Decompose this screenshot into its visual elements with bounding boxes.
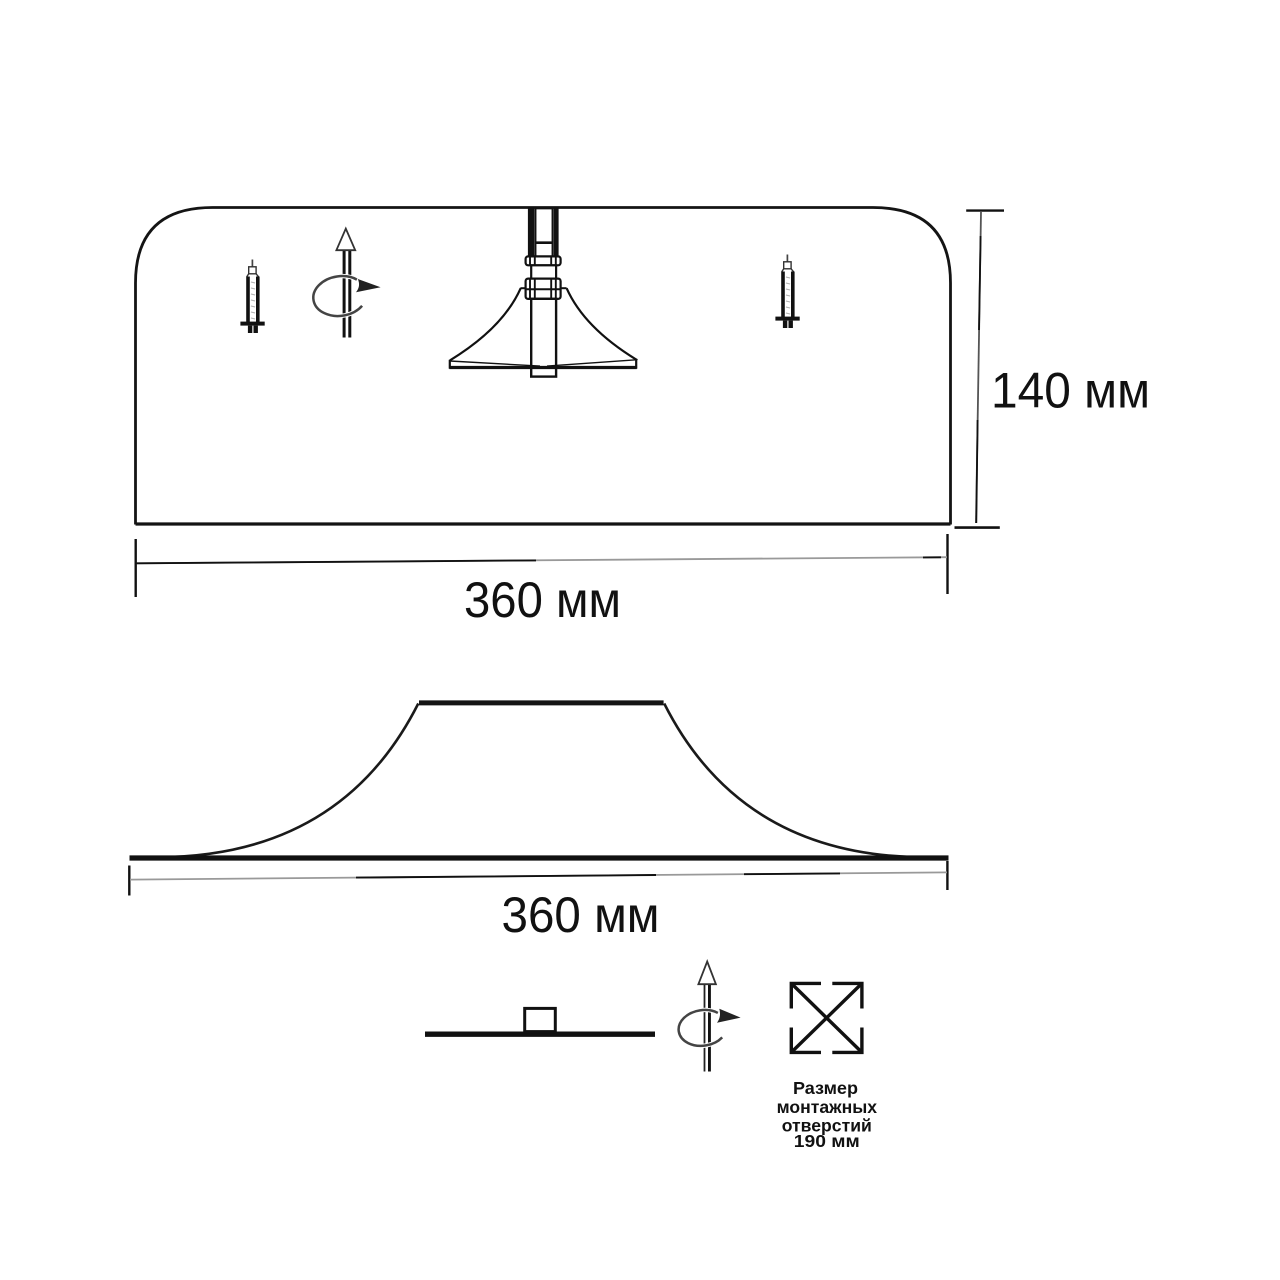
svg-text:монтажных: монтажных: [777, 1097, 878, 1117]
svg-text:Размер: Размер: [793, 1078, 858, 1098]
svg-text:360 мм: 360 мм: [464, 572, 621, 628]
svg-text:360 мм: 360 мм: [502, 887, 660, 943]
svg-text:190 мм: 190 мм: [794, 1131, 860, 1151]
svg-text:140 мм: 140 мм: [991, 363, 1150, 419]
